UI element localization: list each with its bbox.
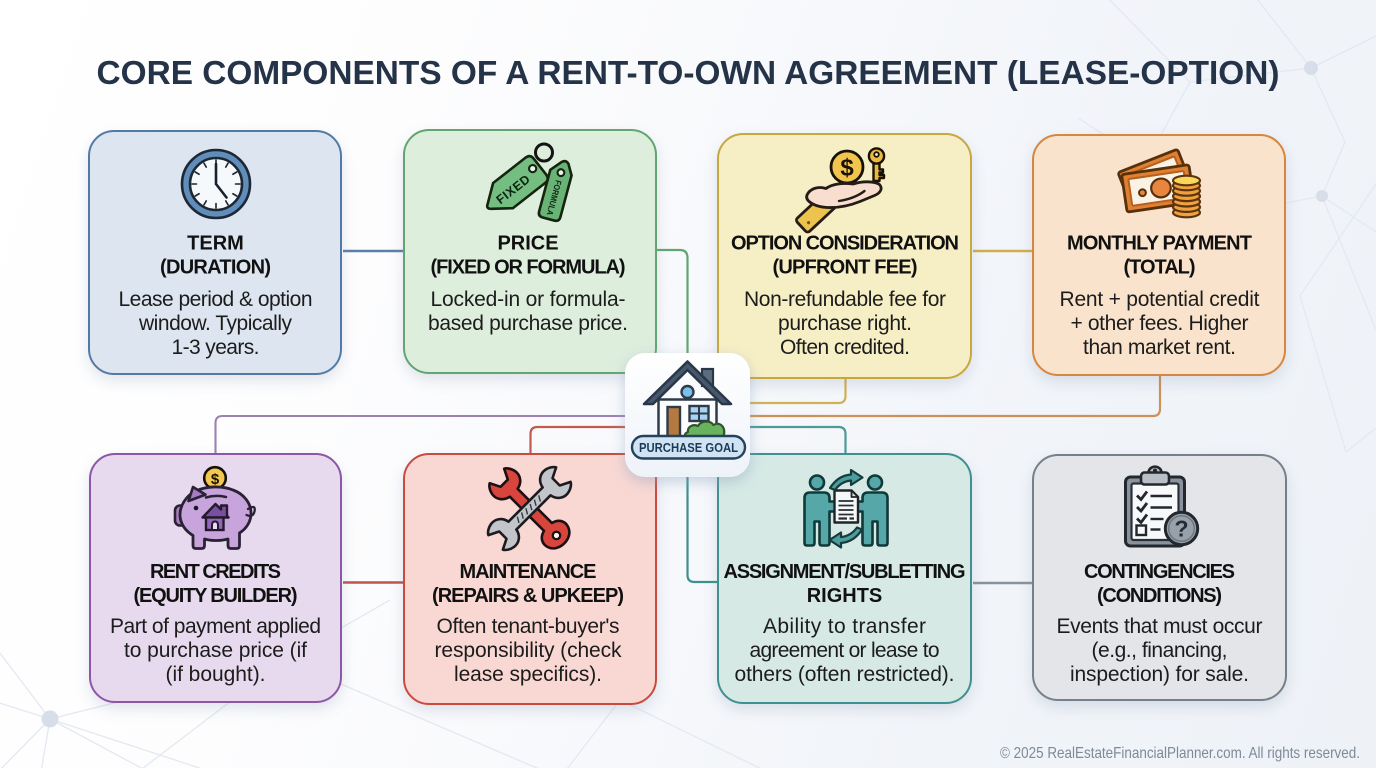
svg-text:© 2025 RealEstateFinancialPlan: © 2025 RealEstateFinancialPlanner.com. A… <box>1000 745 1360 762</box>
svg-text:to purchase price (if: to purchase price (if <box>124 639 307 662</box>
svg-text:window. Typically: window. Typically <box>138 312 293 335</box>
svg-text:Locked-in or formula-: Locked-in or formula- <box>431 288 626 311</box>
svg-text:$: $ <box>211 471 220 488</box>
svg-text:ASSIGNMENT/SUBLETTING: ASSIGNMENT/SUBLETTING <box>724 561 966 583</box>
svg-text:CORE COMPONENTS OF A RENT-TO-O: CORE COMPONENTS OF A RENT-TO-OWN AGREEME… <box>97 54 1280 91</box>
svg-text:PURCHASE GOAL: PURCHASE GOAL <box>639 441 738 455</box>
svg-text:(UPFRONT FEE): (UPFRONT FEE) <box>773 257 918 279</box>
svg-text:(DURATION): (DURATION) <box>160 257 271 279</box>
svg-text:than market rent.: than market rent. <box>1083 336 1236 359</box>
svg-text:Lease period & option: Lease period & option <box>119 288 313 311</box>
svg-text:MONTHLY PAYMENT: MONTHLY PAYMENT <box>1067 233 1252 255</box>
svg-text:Events that must occur: Events that must occur <box>1057 615 1263 638</box>
svg-text:+ other fees. Higher: + other fees. Higher <box>1071 312 1249 335</box>
svg-text:Often credited.: Often credited. <box>780 336 910 359</box>
svg-text:(TOTAL): (TOTAL) <box>1124 257 1196 279</box>
svg-text:(CONDITIONS): (CONDITIONS) <box>1097 585 1222 607</box>
svg-text:(EQUITY BUILDER): (EQUITY BUILDER) <box>134 585 298 607</box>
svg-text:CONTINGENCIES: CONTINGENCIES <box>1084 561 1235 583</box>
svg-text:?: ? <box>1174 516 1188 542</box>
svg-text:(if bought).: (if bought). <box>166 663 266 686</box>
svg-text:responsibility (check: responsibility (check <box>435 639 623 662</box>
svg-text:Part of payment applied: Part of payment applied <box>110 615 321 638</box>
svg-text:(REPAIRS & UPKEEP): (REPAIRS & UPKEEP) <box>432 585 624 607</box>
svg-text:(e.g., financing,: (e.g., financing, <box>1092 639 1228 662</box>
svg-text:RIGHTS: RIGHTS <box>807 585 883 607</box>
svg-text:1-3 years.: 1-3 years. <box>172 336 260 359</box>
svg-text:agreement or lease to: agreement or lease to <box>750 639 940 662</box>
svg-text:Non-refundable fee for: Non-refundable fee for <box>744 288 946 311</box>
svg-text:Rent + potential credit: Rent + potential credit <box>1060 288 1260 311</box>
svg-text:based purchase price.: based purchase price. <box>428 312 628 335</box>
svg-text:MAINTENANCE: MAINTENANCE <box>460 561 597 583</box>
svg-text:$: $ <box>840 155 854 182</box>
svg-text:RENT CREDITS: RENT CREDITS <box>150 561 281 583</box>
svg-text:Ability to transfer: Ability to transfer <box>763 615 926 638</box>
svg-text:(FIXED OR FORMULA): (FIXED OR FORMULA) <box>431 257 626 279</box>
svg-text:lease specifics).: lease specifics). <box>454 663 602 686</box>
svg-text:OPTION CONSIDERATION: OPTION CONSIDERATION <box>731 233 959 255</box>
svg-text:purchase right.: purchase right. <box>778 312 912 335</box>
svg-text:inspection) for sale.: inspection) for sale. <box>1070 663 1249 686</box>
svg-text:Often tenant-buyer's: Often tenant-buyer's <box>437 615 620 638</box>
svg-text:PRICE: PRICE <box>497 233 558 255</box>
svg-text:others (often restricted).: others (often restricted). <box>735 663 955 686</box>
svg-text:TERM: TERM <box>187 233 244 255</box>
